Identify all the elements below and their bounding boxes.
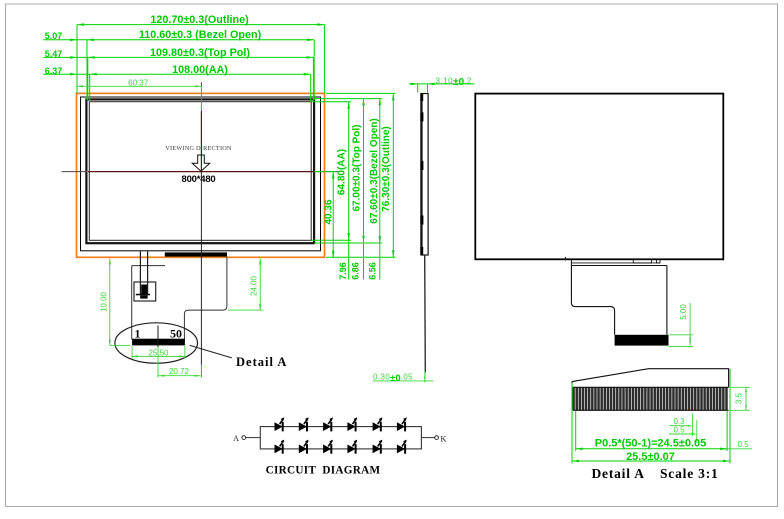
svg-text:110.60±0.3 (Bezel Open): 110.60±0.3 (Bezel Open) (139, 29, 262, 41)
svg-text:24.00: 24.00 (250, 275, 259, 296)
svg-text:VIEWING DIRECTION: VIEWING DIRECTION (165, 145, 232, 152)
svg-text:6.56: 6.56 (368, 262, 378, 280)
svg-text:Detail A: Detail A (236, 355, 287, 369)
svg-text:7.96: 7.96 (338, 262, 348, 280)
svg-text:1: 1 (135, 327, 141, 341)
svg-text:25.50: 25.50 (148, 348, 169, 357)
svg-text:64.80(AA): 64.80(AA) (337, 149, 348, 195)
svg-text:CIRCUIT DIAGRAM: CIRCUIT DIAGRAM (266, 465, 381, 477)
svg-text:76.30±0.3(Outline): 76.30±0.3(Outline) (381, 126, 392, 212)
svg-text:25.5±0.07: 25.5±0.07 (626, 451, 675, 463)
svg-text:120.70±0.3(Outline): 120.70±0.3(Outline) (150, 14, 249, 26)
svg-text:5.47: 5.47 (45, 49, 63, 59)
svg-text:108.00(AA): 108.00(AA) (172, 64, 228, 76)
svg-text:A: A (233, 434, 239, 443)
svg-text:K: K (440, 433, 447, 443)
svg-text:3.5: 3.5 (735, 392, 744, 404)
svg-text:800*480: 800*480 (182, 174, 216, 185)
svg-text:6.37: 6.37 (45, 66, 63, 76)
svg-text:0.5: 0.5 (673, 425, 685, 434)
svg-text:67.00±0.3(Top Pol): 67.00±0.3(Top Pol) (352, 125, 363, 212)
svg-text:6.86: 6.86 (351, 262, 361, 280)
svg-text:60.37: 60.37 (128, 78, 149, 87)
svg-text:0.5: 0.5 (737, 440, 749, 449)
svg-text:Scale 3:1: Scale 3:1 (660, 466, 719, 481)
svg-text:5.00: 5.00 (679, 304, 688, 320)
svg-text:20.72: 20.72 (169, 367, 190, 376)
svg-text:P0.5*(50-1)=24.5±0.05: P0.5*(50-1)=24.5±0.05 (595, 437, 707, 449)
svg-text:Detail A: Detail A (592, 466, 645, 481)
svg-text:50: 50 (170, 327, 182, 341)
svg-text:109.80±0.3(Top Pol): 109.80±0.3(Top Pol) (150, 47, 250, 59)
svg-text:67.60±0.3(Bezel Open): 67.60±0.3(Bezel Open) (369, 118, 380, 224)
svg-text:10.00: 10.00 (100, 291, 109, 312)
svg-text:40.36: 40.36 (324, 199, 335, 224)
svg-text:5.07: 5.07 (45, 31, 63, 41)
